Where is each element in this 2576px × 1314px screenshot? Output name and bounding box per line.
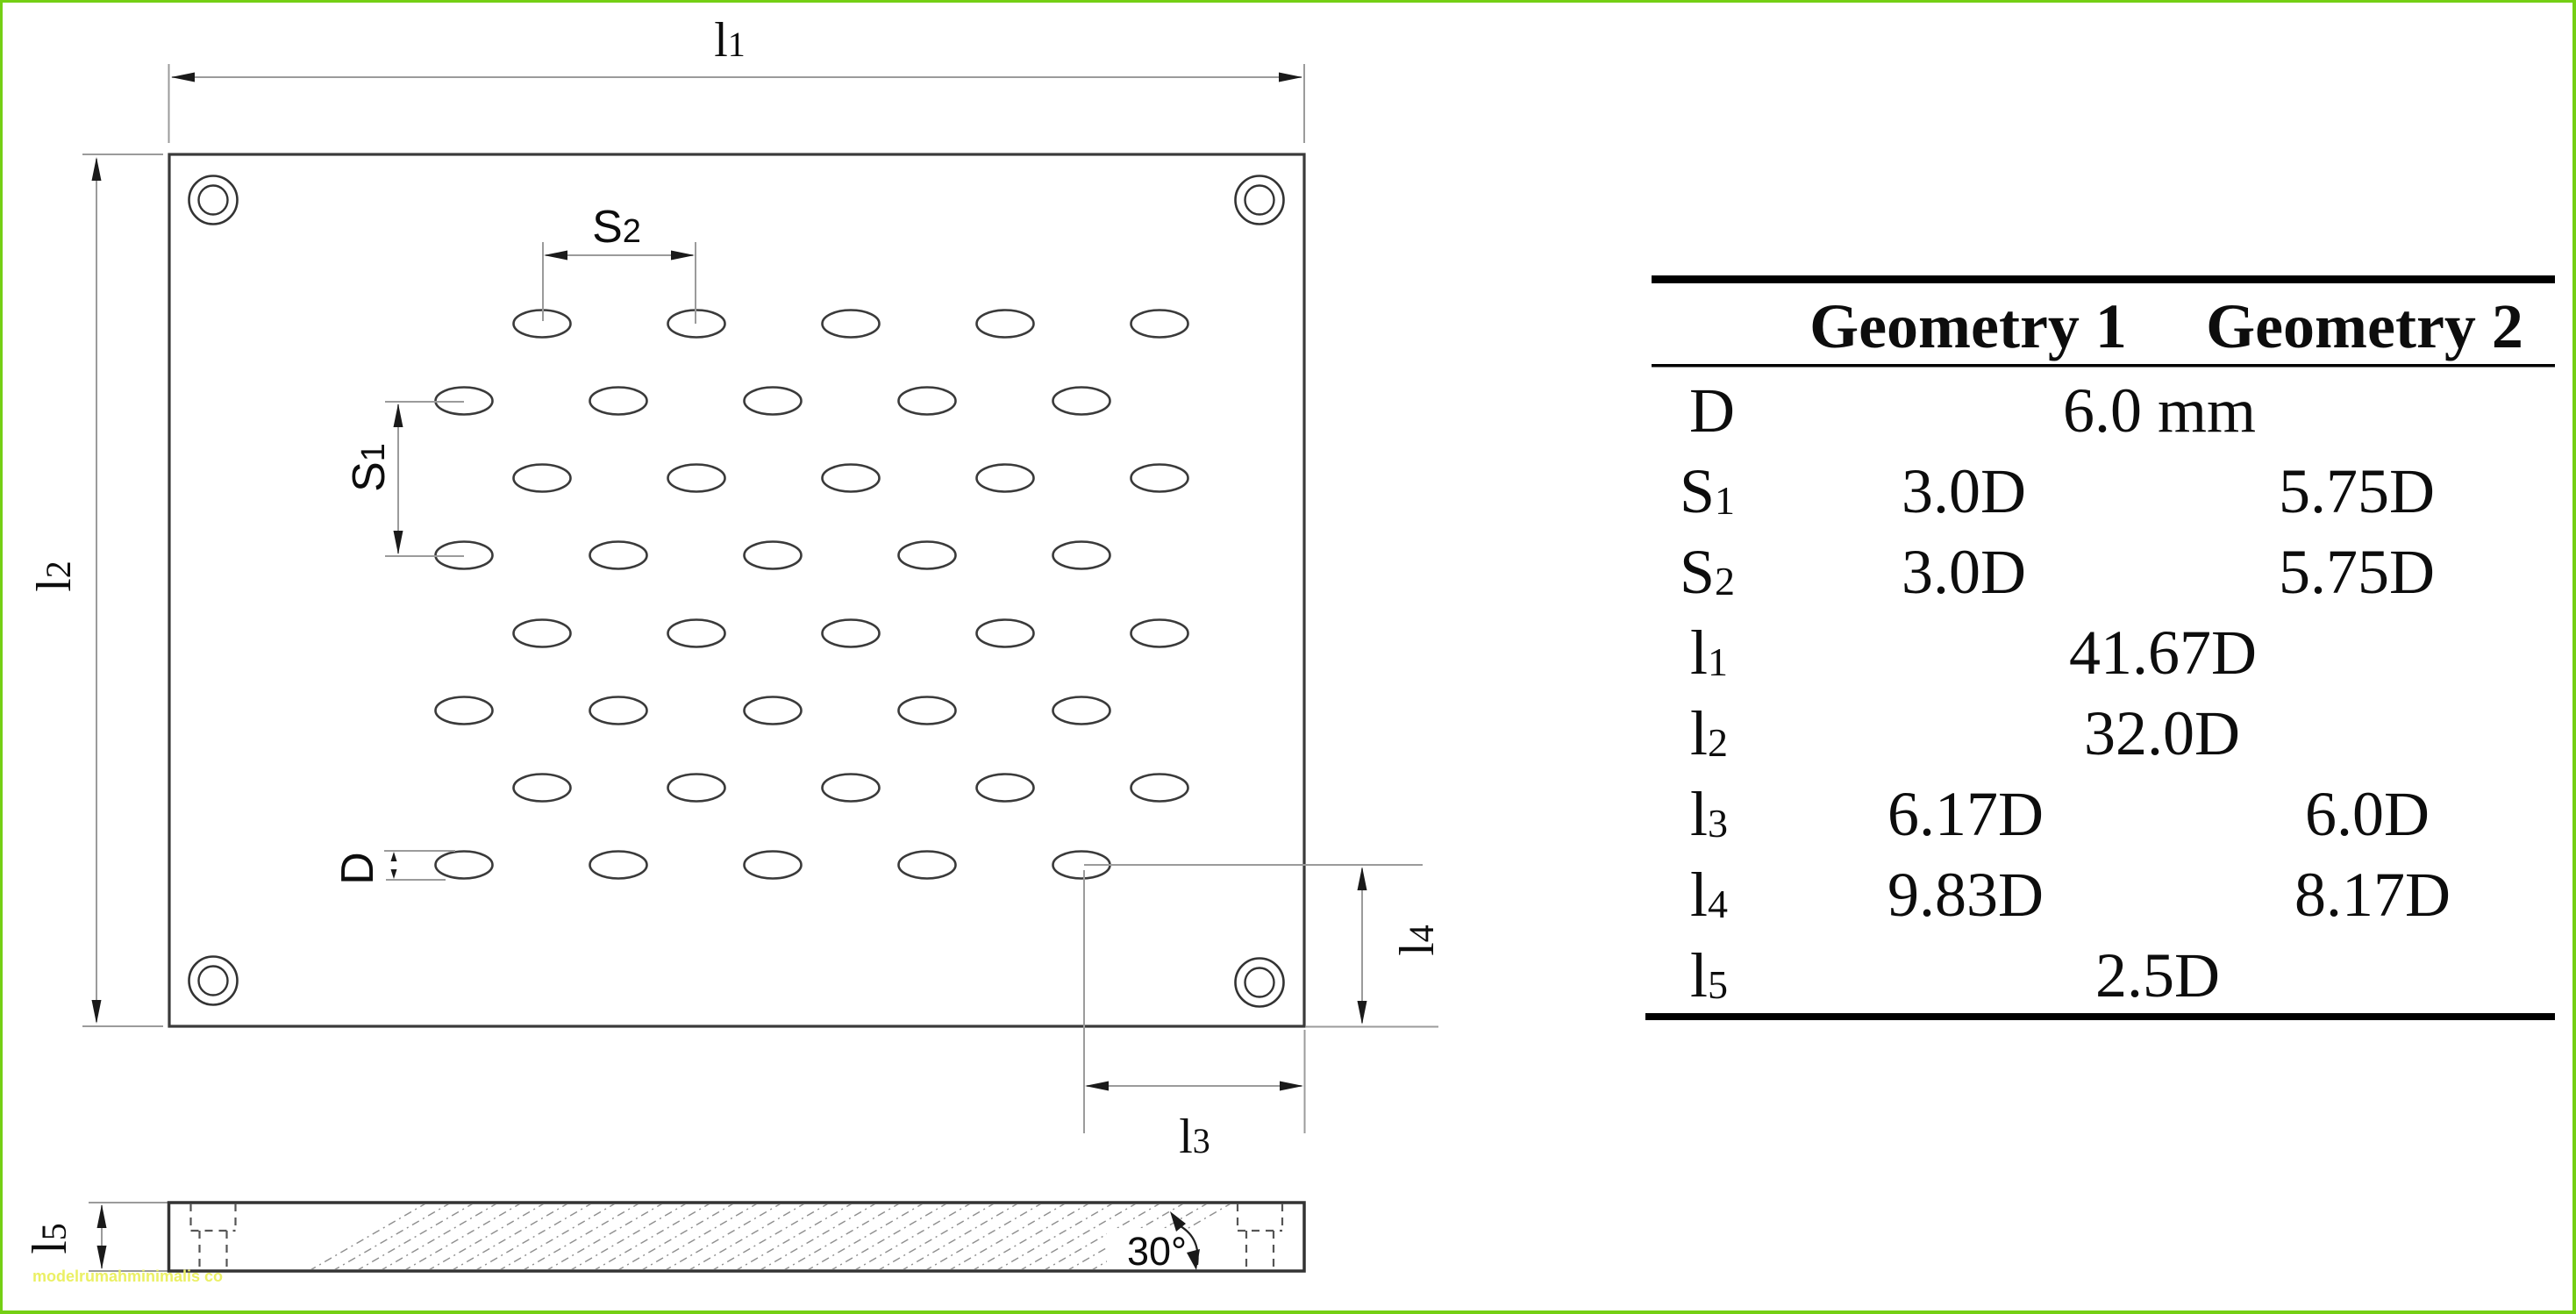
svg-text:9.83D: 9.83D [1887, 860, 2044, 930]
svg-text:5.75D: 5.75D [2279, 456, 2435, 526]
svg-text:2.5D: 2.5D [2095, 940, 2220, 1010]
svg-text:3.0D: 3.0D [1902, 537, 2026, 607]
svg-text:6.0 mm: 6.0 mm [2063, 375, 2256, 446]
svg-text:3.0D: 3.0D [1902, 456, 2026, 526]
svg-text:8.17D: 8.17D [2294, 860, 2451, 930]
svg-text:D: D [1689, 375, 1735, 446]
svg-text:6.0D: 6.0D [2305, 779, 2430, 849]
svg-text:5.75D: 5.75D [2279, 537, 2435, 607]
svg-text:modelrumahminimalis co: modelrumahminimalis co [32, 1268, 223, 1285]
svg-text:41.67D: 41.67D [2069, 618, 2257, 688]
svg-text:Geometry 2: Geometry 2 [2206, 291, 2523, 361]
svg-text:6.17D: 6.17D [1887, 779, 2044, 849]
svg-text:D: D [332, 852, 383, 885]
svg-text:32.0D: 32.0D [2084, 698, 2240, 768]
svg-text:Geometry 1: Geometry 1 [1809, 291, 2127, 361]
svg-text:30°: 30° [1127, 1229, 1187, 1274]
